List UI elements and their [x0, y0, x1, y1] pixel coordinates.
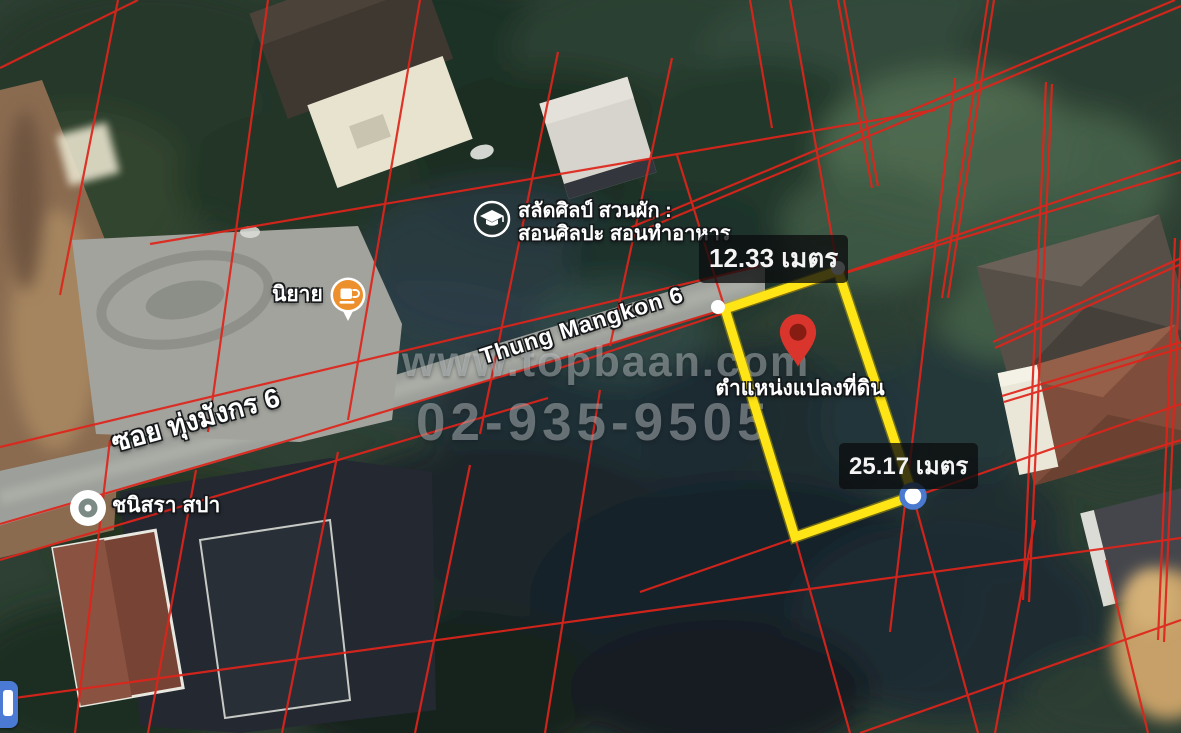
measure-depth-badge: 25.17 เมตร: [839, 443, 978, 489]
location-pin-icon[interactable]: [776, 312, 820, 370]
satellite-map[interactable]: www.topbaan.com 02-935-9505 Thung Mangko…: [0, 0, 1181, 733]
measure-width-badge: 12.33 เมตร: [699, 235, 848, 283]
parcel-position-label: ตำแหน่งแปลงที่ดิน: [690, 372, 910, 405]
subject-parcel-layer: [0, 0, 1181, 733]
vertex-dot[interactable]: [711, 300, 725, 314]
blue-poi-badge[interactable]: [0, 681, 18, 728]
